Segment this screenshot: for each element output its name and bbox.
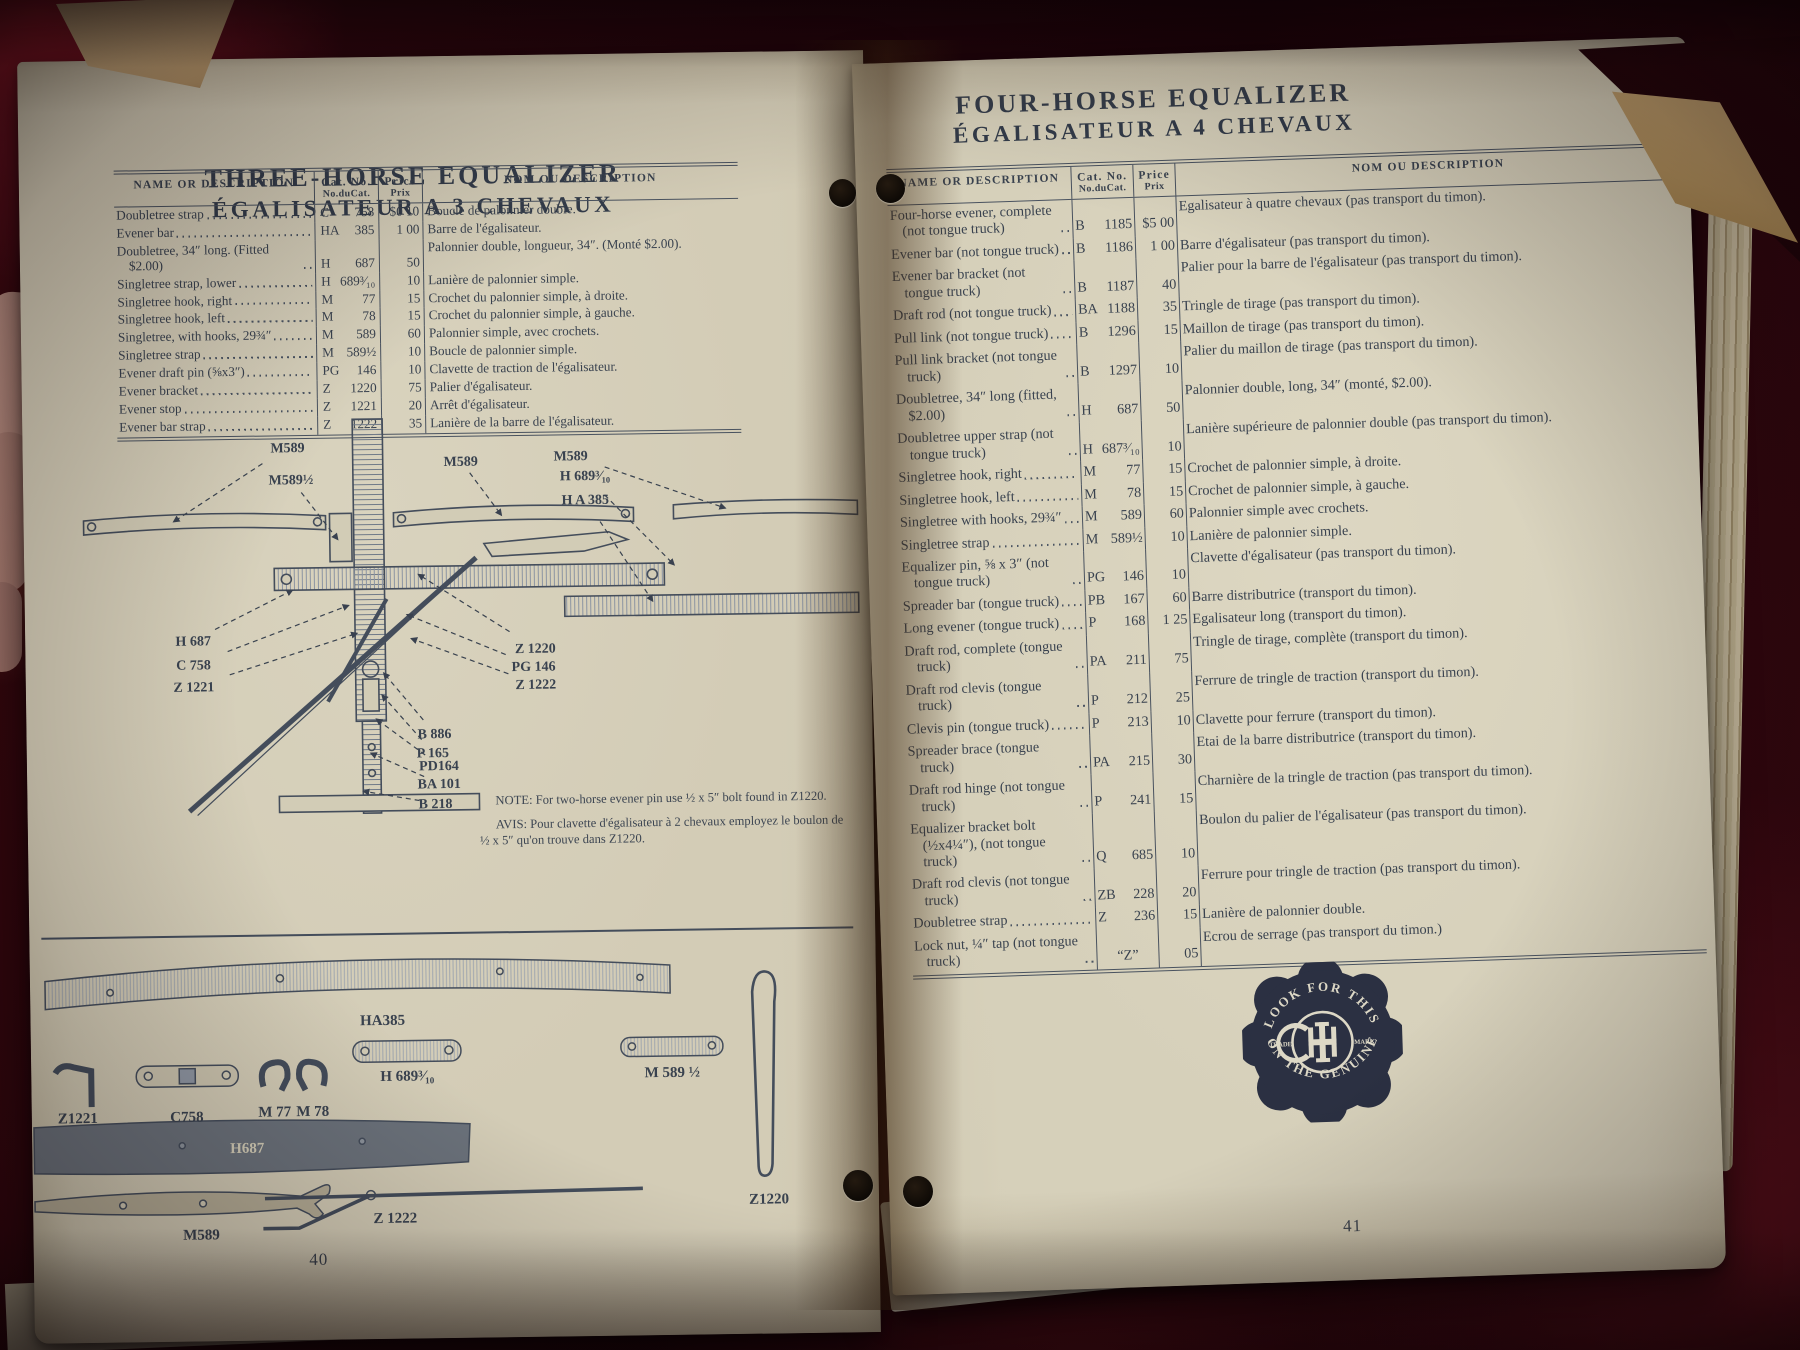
cell-catalog-number: M589 [1082,505,1145,530]
cell-nom: Palonnier simple, avec crochets. [424,321,740,343]
cell-nom: Barre distributrice (transport du timon)… [1188,570,1694,609]
dot-leader [1068,414,1076,416]
cell-name: Draft rod clevis (not tongue truck) [910,869,1095,914]
dot-leader [204,356,314,360]
cell-nom: Egalisateur à quatre chevaux (pas transp… [1175,180,1682,236]
leader-line [384,672,424,720]
table-row: Singletree strap, lowerH689³⁄₁₀10Lanière… [115,268,739,295]
table-row: Doubletree, 34″ long (fitted, $2.00)H687… [894,364,1689,429]
cell-name: Doubletree strap [114,205,314,226]
table-row: Long evener (tongue truck)P1681 25Egalis… [901,593,1695,642]
cell-name: Equalizer bracket bolt (½x4¼″), (not ton… [908,814,1094,875]
table-row: Evener draft pin (⅝x3″)PG14610Clavette d… [116,357,740,384]
cell-price: 05 [1158,927,1201,967]
diagram-label: PD164 [419,759,459,775]
leader-line [227,605,349,651]
cell-name: Evener bracket [117,381,317,402]
part-label-z1221: Z1221 [58,1111,98,1128]
dot-leader [1052,727,1086,730]
cell-name: Singletree hook, right [896,462,1081,491]
table-body: Doubletree strapC758$0 10Boucle de palon… [114,199,741,437]
part-label-m589: M589 [183,1227,220,1244]
evener-bar-lower [362,721,381,813]
cell-catalog-number: BA1188 [1075,298,1138,323]
cell-price: 35 [1137,297,1180,321]
cell-name: Singletree strap [898,529,1083,558]
cell-catalog-number: M78 [1081,482,1144,507]
dot-leader [1084,899,1092,901]
table-row: Clevis pin (tongue truck)P21310Clavette … [905,693,1699,742]
table-row: Lock nut, ¼″ tap (not tongue truck)“Z”05… [912,910,1707,975]
cell-nom: Lanière de palonnier double. [1199,888,1705,927]
cell-price: 60 [1144,503,1187,527]
cell-name: Singletree with hooks, 29¾″ [898,507,1083,536]
cell-price: 15 [1157,905,1200,929]
dot-leader [1011,922,1093,927]
cell-catalog-number: Z236 [1095,906,1158,931]
part-z1221-hook [55,1066,92,1108]
dot-leader [248,374,314,377]
parts-table-right: NAME OR DESCRIPTION Cat. No.No.duCat. Pr… [886,143,1706,980]
cell-nom: Arrêt d'égalisateur. [425,393,741,415]
note-english: NOTE: For two-horse evener pin use ½ x 5… [479,788,845,808]
cell-catalog-number: H687³⁄₁₀ [1079,421,1142,462]
cell-catalog-number: B1185 [1071,198,1134,239]
cell-catalog-number: P168 [1085,611,1148,636]
cell-price: 15 [380,308,424,327]
cell-price: 15 [1137,319,1180,343]
diagonal-brace [186,558,479,812]
diagram-label: B 886 [418,727,452,742]
col-header-price: PricePrix [1132,164,1175,197]
cell-price: 20 [1156,866,1199,906]
cell-price: 10 [1144,526,1187,550]
table-row: Pull link bracket (not tongue truck)B129… [892,325,1687,390]
leader-line [301,492,338,540]
leader-line [173,464,263,522]
cell-nom: Ecrou de serrage (pas transport du timon… [1200,910,1707,966]
table-header-row: NAME OR DESCRIPTION Cat. No.No.duCat. Pr… [114,166,738,208]
dot-leader [201,392,314,396]
binding-hole [829,179,856,207]
cell-nom: Ferrure de tringle de traction (transpor… [1191,654,1698,710]
dot-leader [1062,627,1082,630]
col-header-nom: NOM OU DESCRIPTION [1174,147,1681,196]
dot-leader [1073,582,1081,584]
dot-leader [1018,498,1079,502]
cell-price: 10 [379,272,423,291]
equalizer-diagram: M589M589½M589M589H 689³⁄₁₀H A 385H 687C … [22,410,868,827]
part-z1220-clip [752,971,778,1175]
cell-catalog-number: Q685 [1092,812,1156,869]
table-row: Doubletree strapC758$0 10Boucle de palon… [114,199,738,226]
dot-leader [993,543,1080,548]
leader-line [605,494,675,566]
clevis-ring [362,661,378,677]
table-row: Evener barHA3851 00Barre de l'égalisateu… [114,217,738,244]
cell-name: Clevis pin (tongue truck) [905,713,1090,742]
cell-price: 75 [1148,632,1191,672]
cell-price: 15 [1142,458,1185,482]
cell-nom: Palier du maillon de tirage (pas transpo… [1180,325,1687,381]
part-label-h689: H 689³⁄₁₀ [380,1068,435,1085]
dot-leader [235,302,312,305]
table-row: Pull link (not tongue truck)B129615Maill… [892,302,1686,351]
dot-leader [177,234,312,238]
cell-price: 60 [1146,587,1189,611]
dot-leader [1080,805,1088,807]
cell-nom: Ferrure pour tringle de traction (pas tr… [1198,849,1705,905]
table-row: Singletree with hooks, 29¾″M58960Palonni… [898,487,1692,536]
cell-catalog-number: “Z” [1096,928,1159,969]
part-label-m78: M 78 [296,1104,329,1120]
cell-nom: Crochet du palonnier simple, à gauche. [424,303,740,325]
catalog-photo: THREE-HORSE EQUALIZER ÉGALISATEUR A 3 CH… [0,0,1800,1350]
cell-name: Doubletree, 34″ long (fitted, $2.00) [894,384,1079,429]
table-row: Draft rod clevis (tongue truck)P21225Fer… [903,654,1698,719]
cell-catalog-number: M589½ [316,344,380,363]
cell-catalog-number: PG146 [316,362,380,381]
table-row: Singletree strapM589½10Boucle de palonni… [116,339,740,366]
cell-catalog-number: PB167 [1084,589,1147,614]
cell-catalog-number: M589 [316,326,380,345]
cell-price: 10 [1138,342,1181,382]
diagram-label: Z 1220 [515,642,556,658]
cell-price: 1 00 [378,221,422,240]
cell-catalog-number: P212 [1087,672,1150,713]
table-row: Draft rod, complete (tongue truck)PA2117… [902,615,1697,680]
diagram-label: Z 1222 [515,678,556,694]
dot-leader [1051,336,1073,339]
cell-nom: Clavette d'égalisateur (pas transport du… [1187,532,1694,588]
seal-scallop [1240,959,1405,1124]
table-row: Spreader bar (tongue truck)PB16760Barre … [900,570,1694,619]
table-row: Evener bar strapZ122235Lanière de la bar… [117,411,741,438]
table-row: Draft rod clevis (not tongue truck)ZB228… [910,849,1705,914]
cell-catalog-number: Z1221 [317,398,381,417]
draft-plate [484,531,628,556]
dot-leader [209,428,315,431]
part-label-c758: C758 [170,1109,204,1125]
table-row: Doubletree, 34″ long. (Fitted $2.00)H687… [115,235,739,277]
cell-nom: Boucle de palonnier double. [422,199,738,221]
parts-figures: HA385 Z1221 C758 M 77 M 78 H 689³⁄₁₀ M 5… [29,938,874,1326]
dot-leader [228,320,313,323]
cell-catalog-number: C758 [314,204,378,223]
diagram-label: Z 1221 [173,680,214,696]
col-header-name: NAME OR DESCRIPTION [114,172,314,207]
part-h687-bar [34,1117,471,1176]
cell-price: 15 [379,290,423,309]
table-row: Singletree hook, rightM7715Crochet du pa… [115,285,739,312]
ihc-trademark-seal: LOOK FOR THIS ON THE GENUINE TRADE MARK [1240,959,1405,1124]
col-header-nom: NOM OU DESCRIPTION [422,166,738,202]
cell-name: Draft rod clevis (tongue truck) [903,674,1088,719]
diagram-drawing [82,412,861,817]
footnotes: NOTE: For two-horse evener pin use ½ x 5… [479,788,846,857]
table-row: Singletree hook, leftM7815Crochet du pal… [116,303,740,330]
table-row: Singletree strapM589½10Lanière de palonn… [898,509,1692,558]
cell-nom: Crochet de palonnier simple, à gauche. [1185,464,1691,503]
cell-catalog-number: B1296 [1076,321,1139,346]
cell-nom: Palonnier simple avec crochets. [1186,487,1692,526]
cell-price: 25 [1149,671,1192,711]
cell-catalog-number: P241 [1090,773,1153,814]
part-m589half-strap [621,1036,723,1056]
cell-price: 60 [380,326,424,345]
table-body: Four-horse evener, complete (not tongue … [888,180,1707,976]
diagram-label: BA 101 [418,777,461,793]
cell-price: 15 [1143,481,1186,505]
cell-catalog-number: PG146 [1083,550,1146,591]
cell-name: Doubletree, 34″ long. (Fitted $2.00) [115,241,315,277]
cell-price: 15 [1152,771,1195,811]
lower-bar-right [565,592,859,616]
cell-name: Singletree hook, left [897,484,1082,513]
table-row: Singletree hook, leftM7815Crochet de pal… [897,464,1691,513]
table-row: Singletree, with hooks, 29¾″M58960Palonn… [116,321,740,348]
cell-catalog-number: H687 [315,240,379,274]
cell-price: $5 00 [1133,197,1176,237]
part-label-m589half: M 589 ½ [644,1065,700,1082]
right-title-french: ÉGALISATEUR A 4 CHEVAUX [862,107,1447,152]
cell-price: 50 [1140,381,1183,421]
evener-striped-bar [274,563,664,590]
cell-catalog-number: ZB228 [1094,867,1157,908]
seal-text-bottom: ON THE GENUINE [1264,1032,1383,1083]
cell-catalog-number: P213 [1088,711,1151,736]
table-row: Equalizer pin, ⅝ x 3″ (not tongue truck)… [899,532,1694,597]
part-label-ha385: HA385 [360,1013,405,1030]
part-ha385-bar [45,956,671,1010]
seal-inner-ring [1292,1011,1354,1073]
cell-price: 10 [1141,420,1184,460]
leader-line [382,694,422,740]
cell-nom: Egalisateur long (transport du timon). [1189,593,1695,632]
table-row: Evener bracketZ122075Palier d'égalisateu… [117,375,741,402]
singletree-middle [393,504,633,527]
note-french: AVIS: Pour clavette d'égalisateur à 2 ch… [480,813,846,849]
cell-nom: Clavette pour ferrure (transport du timo… [1192,693,1698,732]
singletree-right [673,499,857,519]
col-header-name: NAME OR DESCRIPTION [886,167,1071,205]
cell-nom: Etai de la barre distributrice (transpor… [1193,716,1700,772]
cell-nom: Palonnier double, longueur, 34″. (Monté … [423,235,739,272]
cell-name: Singletree, with hooks, 29¾″ [116,327,316,348]
binding-hole [843,1170,873,1201]
cell-price: 10 [1150,710,1193,734]
cell-nom: Boucle de palonnier simple. [424,339,740,361]
bottom-crossbar [279,794,479,813]
page-number-right: 41 [1302,1215,1403,1238]
leader-line [411,637,508,675]
table-row: Draft rod hinge (not tongue truck)P24115… [907,755,1702,820]
leader-line [363,790,419,801]
dot-leader [1076,666,1084,668]
table-row: Evener bar (not tongue truck)B11861 00Ba… [889,219,1683,268]
diagram-label: M589 [270,441,304,456]
cell-name: Spreader brace (tongue truck) [905,736,1090,781]
diagram-label: M589½ [269,473,314,489]
col-header-price: PricePrix [378,170,422,203]
seal-text-trade: TRADE [1269,1041,1292,1049]
cell-catalog-number: M77 [1080,460,1143,485]
cell-catalog-number: H689³⁄₁₀ [315,273,379,292]
cell-nom: Crochet du palonnier simple, à droite. [423,285,739,307]
diagram-label: PG 146 [512,660,556,676]
cell-catalog-number: Z1220 [317,380,381,399]
cell-catalog-number: M78 [316,308,380,327]
cell-price: 35 [381,415,425,434]
left-page: THREE-HORSE EQUALIZER ÉGALISATEUR A 3 CH… [17,50,881,1344]
seal-text-top: LOOK FOR THIS [1259,977,1384,1031]
cell-nom: Charnière de la tringle de traction (pas… [1194,755,1701,811]
dot-leader [239,284,312,287]
cell-price: 40 [1135,258,1178,298]
evener-bar-vertical [352,419,386,721]
dot-leader [1063,291,1071,293]
cell-price: 1 00 [1135,235,1178,259]
diagram-label: P 165 [417,746,449,761]
cell-name: Evener bar bracket (not tongue truck) [890,261,1075,306]
dot-leader [1055,314,1073,317]
leader-line [600,521,653,602]
cell-name: Pull link bracket (not tongue truck) [892,345,1077,390]
cell-price: 75 [381,379,425,398]
right-page: FOUR-HORSE EQUALIZER ÉGALISATEUR A 4 CHE… [852,37,1726,1296]
dot-leader [207,216,312,219]
cell-name: Singletree hook, left [116,309,316,330]
dot-leader [1079,766,1087,768]
cell-name: Evener bar [114,223,314,244]
diagram-label: H A 385 [561,493,609,509]
dot-leader [1069,453,1077,455]
dot-leader [274,338,313,341]
cell-catalog-number: B1186 [1073,237,1136,262]
table-row: Singletree hook, rightM7715Crochet de pa… [896,442,1690,491]
cell-nom: Palier d'égalisateur. [425,375,741,397]
part-z1222-rod [265,1188,643,1198]
table-row: Evener bar bracket (not tongue truck)B11… [890,241,1685,306]
cell-price: 10 [1145,548,1188,588]
short-brace [327,599,388,702]
leader-line [229,633,357,675]
cell-price: 10 [380,361,424,380]
part-c758-strap [136,1065,238,1087]
cell-catalog-number: H687 [1078,382,1141,423]
cell-nom: Lanière supérieure de palonnier double (… [1183,403,1690,459]
dot-leader [1062,604,1082,607]
cell-name: Evener draft pin (⅝x3″) [116,363,316,384]
page-number-left: 40 [274,1249,364,1270]
cell-nom: Lanière de palonnier simple. [1186,509,1692,548]
dot-leader [1082,860,1090,862]
cell-nom: Lanière de la barre de l'égalisateur. [425,411,741,433]
cell-price: 1 25 [1147,610,1190,634]
cell-catalog-number: B1187 [1073,259,1136,300]
parts-labels: HA385 Z1221 C758 M 77 M 78 H 689³⁄₁₀ M 5… [56,1007,789,1245]
cell-name: Singletree strap [116,345,316,366]
clevis-body [363,679,379,711]
dot-leader [1061,230,1069,232]
cell-nom: Tringle de tirage (pas transport du timo… [1179,280,1685,319]
cell-name: Lock nut, ¼″ tap (not tongue truck) [912,930,1097,975]
part-m589-singletree [35,1185,331,1222]
cell-name: Long evener (tongue truck) [901,613,1086,642]
leader-line [215,590,294,629]
seal-monogram-ihc [1276,1022,1338,1064]
part-h689-strap [353,1040,461,1063]
cell-nom: Lanière de palonnier simple. [423,268,739,290]
part-m78-hook [299,1062,325,1091]
strap-clip [329,513,352,561]
cell-name: Evener stop [117,399,317,420]
leader-line [605,465,726,510]
dot-leader [1062,252,1070,254]
cell-price: 10 [380,344,424,363]
cell-name: Doubletree upper strap (not tongue truck… [895,423,1080,468]
cell-name: Four-horse evener, complete (not tongue … [888,200,1073,245]
diagram-label: C 758 [176,658,211,673]
cell-price: $0 10 [378,203,422,222]
cell-catalog-number: M589½ [1082,527,1145,552]
col-header-catno: Cat. No.No.duCat. [1070,165,1133,199]
monogram-c [1276,1023,1311,1064]
leader-line [470,472,502,515]
cell-price: 30 [1151,732,1194,772]
cell-name: Draft rod, complete (tongue truck) [902,636,1087,681]
cell-price: 10 [1154,810,1198,867]
dot-leader [1025,475,1078,479]
part-label-m77: M 77 [258,1104,292,1120]
cell-nom: Maillon de tirage (pas transport du timo… [1179,302,1685,341]
table-row: Doubletree upper strap (not tongue truck… [895,403,1690,468]
dot-leader [185,410,314,414]
seal-text-mark: MARK [1354,1038,1375,1046]
col-header-catno: Cat. No.No.duCat. [314,171,378,204]
cell-price: 50 [379,239,423,272]
part-m77-hook [262,1062,288,1091]
singletree-left [83,512,325,535]
diagram-label: B 218 [418,797,452,812]
diagram-label: M589 [444,455,478,470]
diagram-label: H 687 [175,634,211,649]
leader-line [418,573,509,633]
parts-table-left: NAME OR DESCRIPTION Cat. No.No.duCat. Pr… [114,162,742,441]
dot-leader [304,266,312,268]
cell-name: Spreader bar (tongue truck) [900,591,1085,620]
cell-catalog-number: B1297 [1076,343,1139,384]
cell-catalog-number: PA211 [1086,634,1149,675]
cell-nom: Palier pour la barre de l'égalisateur (p… [1177,241,1684,297]
left-title-english: THREE-HORSE EQUALIZER [69,157,757,197]
cell-name: Pull link (not tongue truck) [892,323,1077,352]
table-row: Draft rod (not tongue truck)BA118835Trin… [891,280,1685,329]
cell-nom: Barre de l'égalisateur. [422,217,738,239]
table-row: Evener stopZ122120Arrêt d'égalisateur. [117,393,741,420]
leader-line [371,752,424,777]
cell-name: Evener bar strap [117,417,317,438]
cell-catalog-number: Z1222 [317,416,381,435]
table-row: Equalizer bracket bolt (½x4¼″), (not ton… [908,793,1703,875]
cell-name: Equalizer pin, ⅝ x 3″ (not tongue truck) [899,552,1084,597]
cell-nom: Tringle de tirage, complète (transport d… [1190,615,1697,671]
dot-leader [1077,704,1085,706]
binding-hole [876,174,905,203]
cell-nom: Crochet de palonnier simple, à droite. [1184,442,1690,481]
dot-leader [1066,375,1074,377]
table-row: Doubletree strapZ23615Lanière de palonni… [911,888,1705,937]
